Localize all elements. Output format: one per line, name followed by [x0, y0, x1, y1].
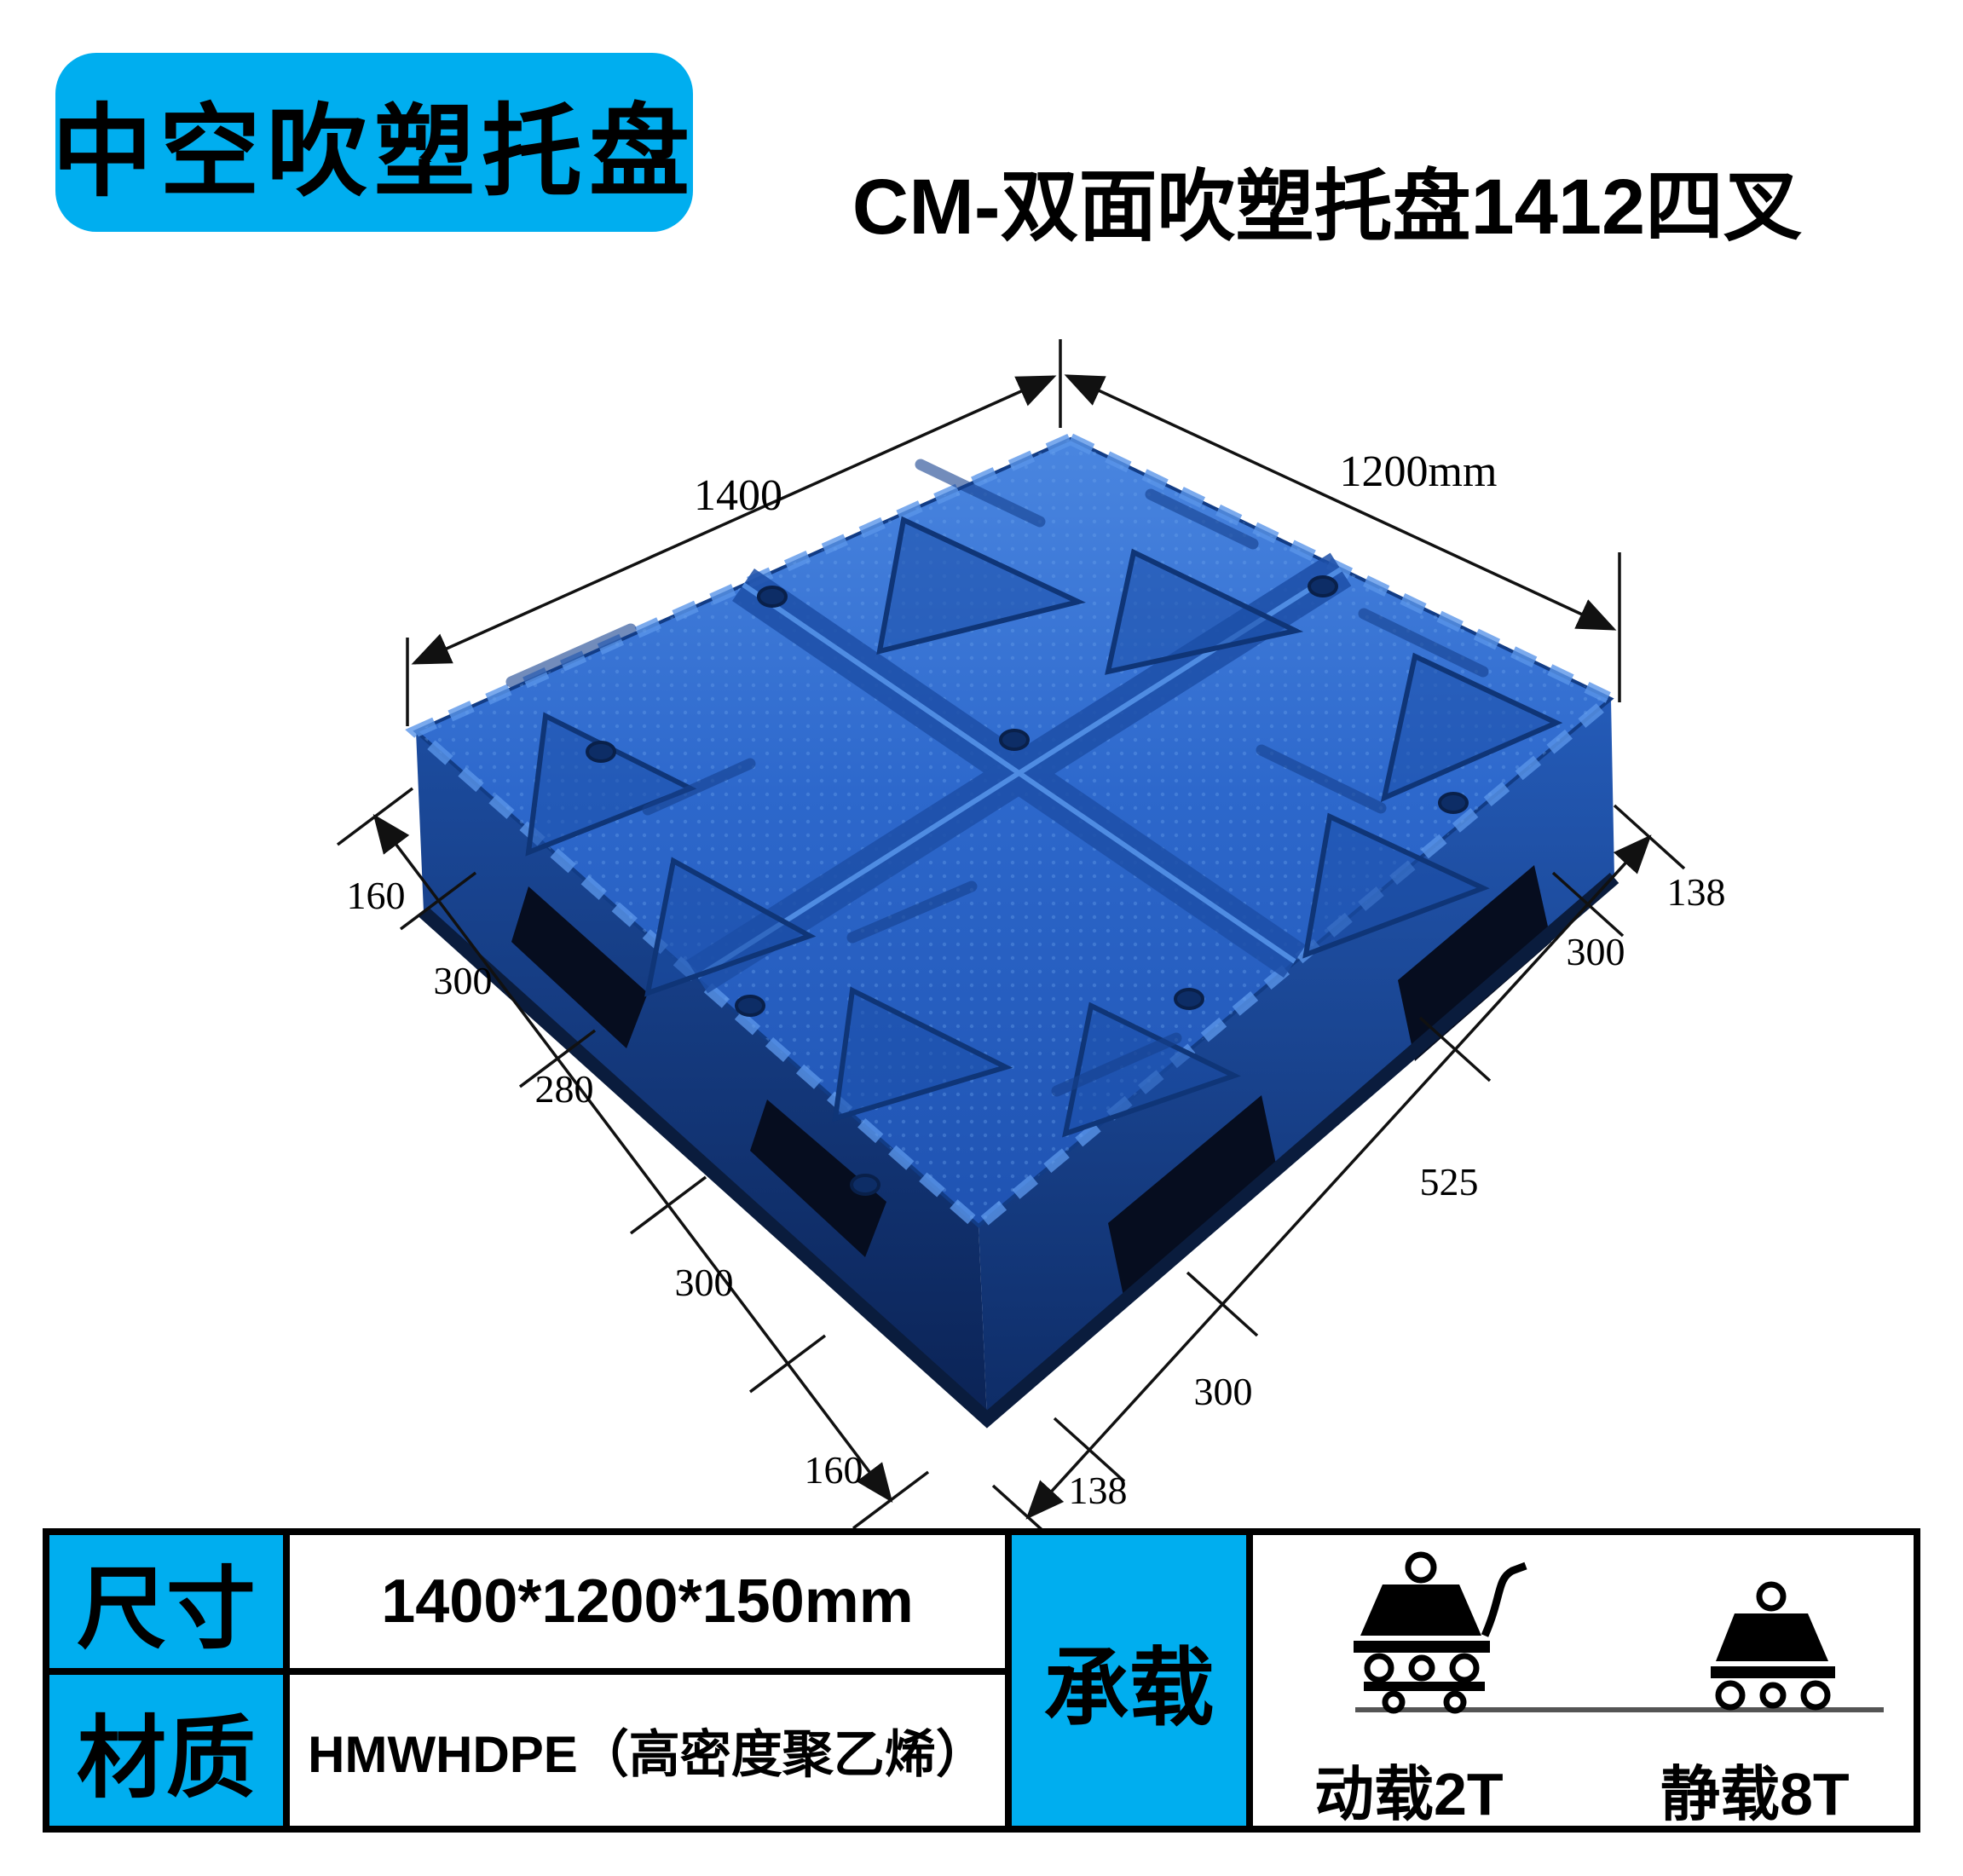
- dimension-label-left-160b: 160: [805, 1448, 863, 1492]
- load-capacity-cell: 动载2T 静载8T: [1253, 1535, 1914, 1826]
- static-load-text: 静载8T: [1660, 1746, 1850, 1833]
- dimension-label-left-300b: 300: [675, 1261, 734, 1304]
- dimension-label-right-525: 525: [1420, 1160, 1479, 1204]
- spec-table: 尺寸 1400*1200*150mm 材质 HMWHDPE（高密度聚乙烯） 承载: [43, 1528, 1920, 1833]
- dimension-label-right-138b: 138: [1069, 1469, 1128, 1512]
- spec-label-size: 尺寸: [49, 1535, 283, 1668]
- dimension-label-left-160a: 160: [347, 874, 406, 917]
- spec-label-load: 承载: [1012, 1535, 1246, 1826]
- spec-value-material: HMWHDPE（高密度聚乙烯）: [290, 1675, 1005, 1826]
- dimension-label-right-138a: 138: [1667, 870, 1726, 914]
- page-root: 中空吹塑托盘 CM-双面吹塑托盘1412四叉: [0, 0, 1963, 1876]
- static-load-icon: [1711, 1584, 1835, 1707]
- pallet-jack-icon: [1354, 1555, 1526, 1711]
- dimension-label-left-280: 280: [535, 1067, 594, 1111]
- dynamic-load-text: 动载2T: [1314, 1746, 1504, 1833]
- dimension-label-left-300a: 300: [434, 959, 493, 1002]
- spec-value-size: 1400*1200*150mm: [290, 1535, 1005, 1668]
- dimension-label-right-300a: 300: [1567, 930, 1625, 973]
- dimension-label-1400: 1400: [694, 471, 782, 520]
- dimension-label-1200mm: 1200mm: [1340, 447, 1498, 496]
- dimension-label-right-300b: 300: [1194, 1370, 1253, 1413]
- pallet-photo: [416, 439, 1614, 1419]
- spec-label-material: 材质: [49, 1675, 283, 1826]
